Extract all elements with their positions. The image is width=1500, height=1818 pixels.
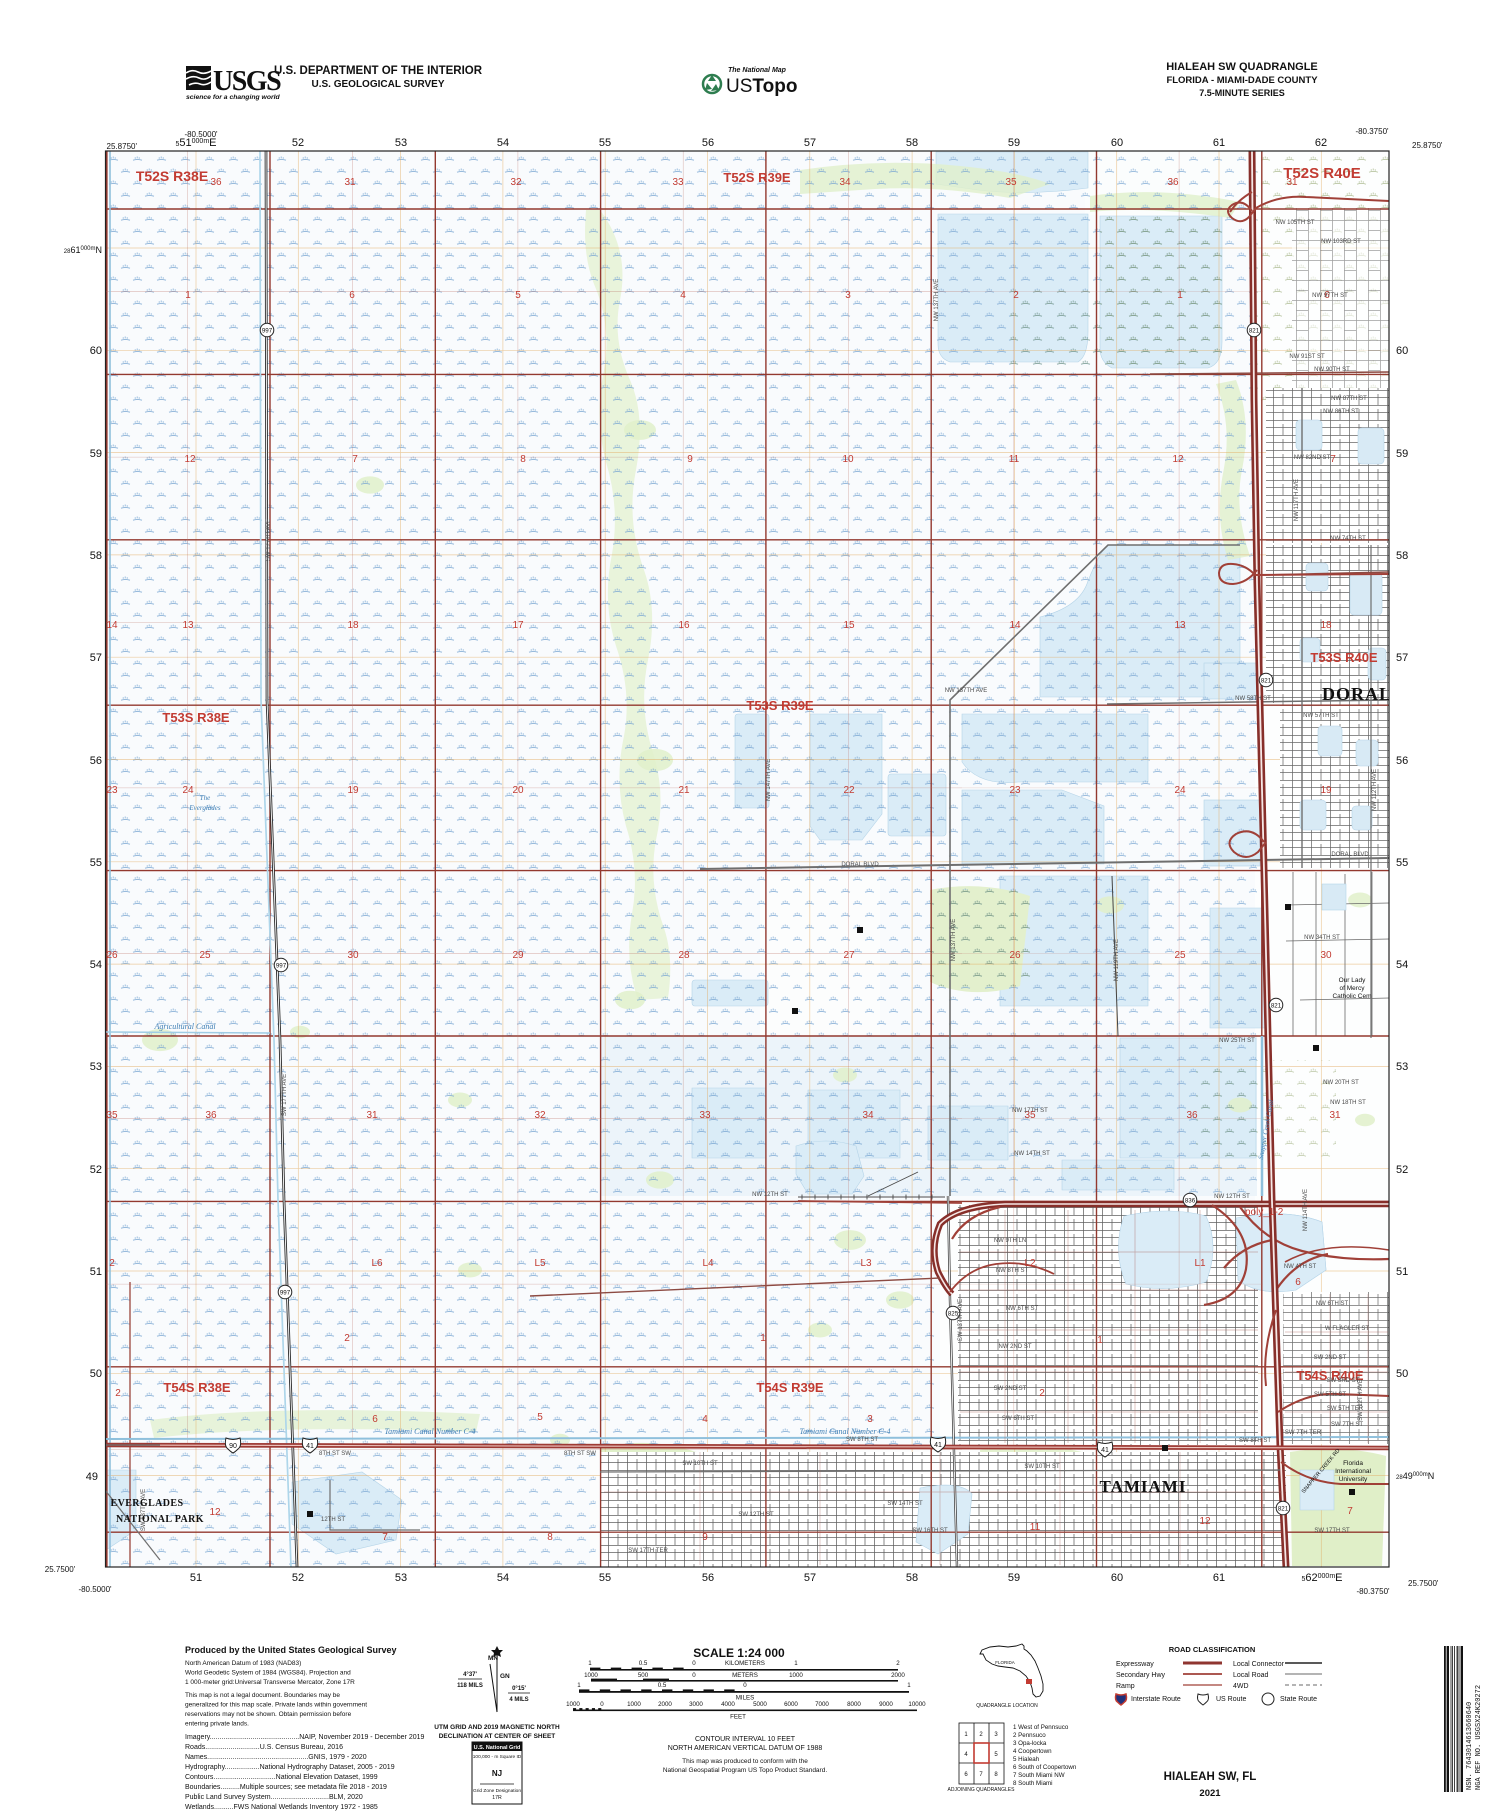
- svg-text:NW 34TH ST: NW 34TH ST: [1304, 935, 1340, 941]
- svg-text:18: 18: [1320, 620, 1332, 631]
- svg-text:NW 82ND ST: NW 82ND ST: [1294, 455, 1331, 461]
- svg-text:55: 55: [90, 857, 102, 869]
- svg-text:NW 90TH ST: NW 90TH ST: [1314, 367, 1350, 373]
- svg-text:41: 41: [1101, 1447, 1109, 1454]
- svg-text:2000: 2000: [658, 1701, 672, 1708]
- svg-text:13: 13: [1174, 620, 1186, 631]
- svg-text:NORTH AMERICAN VERTICAL DATUM: NORTH AMERICAN VERTICAL DATUM OF 1988: [668, 1745, 823, 1752]
- svg-text:53: 53: [395, 1572, 407, 1584]
- svg-text:NSN. 7643014613660640: NSN. 7643014613660640: [1466, 1702, 1474, 1790]
- svg-text:31: 31: [344, 177, 356, 188]
- svg-text:11: 11: [1009, 454, 1020, 465]
- svg-text:U.S. DEPARTMENT OF THE INTERIO: U.S. DEPARTMENT OF THE INTERIOR: [274, 65, 483, 77]
- svg-text:24: 24: [1174, 785, 1186, 796]
- svg-text:FLORIDA - MIAMI-DADE COUNTY: FLORIDA - MIAMI-DADE COUNTY: [1166, 75, 1318, 86]
- svg-text:36: 36: [205, 1110, 217, 1121]
- svg-text:30: 30: [1320, 950, 1332, 961]
- svg-text:SW 10TH ST: SW 10TH ST: [1024, 1464, 1060, 1470]
- svg-text:821: 821: [1278, 1505, 1289, 1512]
- svg-text:NW 17TH ST: NW 17TH ST: [1012, 1108, 1048, 1114]
- svg-text:T52S R39E: T52S R39E: [723, 170, 791, 185]
- svg-text:52: 52: [90, 1164, 102, 1176]
- svg-text:21: 21: [678, 785, 690, 796]
- svg-text:reservations may not be shown.: reservations may not be shown. Obtain pe…: [185, 1711, 352, 1718]
- svg-text:53: 53: [1396, 1061, 1408, 1073]
- svg-text:1 000-meter grid:Universal Tra: 1 000-meter grid:Universal Transverse Me…: [185, 1679, 355, 1686]
- svg-text:27: 27: [843, 950, 855, 961]
- svg-text:57: 57: [90, 652, 102, 664]
- svg-text:58: 58: [90, 550, 102, 562]
- svg-text:6000: 6000: [784, 1701, 798, 1708]
- svg-text:Public Land Survey Syste: Public Land Survey System...............…: [185, 1794, 363, 1801]
- svg-text:SW 7TH TER: SW 7TH TER: [1285, 1430, 1322, 1436]
- svg-text:of Mercy: of Mercy: [1340, 985, 1366, 992]
- svg-text:8TH ST SW: 8TH ST SW: [564, 1451, 596, 1457]
- svg-text:NW 6TH ST: NW 6TH ST: [1316, 1301, 1349, 1307]
- svg-text:Produced by the United States: Produced by the United States Geological…: [185, 1645, 397, 1655]
- svg-text:-80.3750': -80.3750': [1355, 127, 1389, 136]
- svg-text:SW 2ND ST: SW 2ND ST: [1314, 1355, 1347, 1361]
- svg-text:UTM GRID AND 2019 MAGNETIC NOR: UTM GRID AND 2019 MAGNETIC NORTH: [434, 1724, 560, 1731]
- svg-text:56: 56: [702, 1572, 714, 1584]
- svg-text:6 South of Coopertown: 6 South of Coopertown: [1013, 1764, 1077, 1771]
- svg-text:1: 1: [1097, 1335, 1103, 1346]
- svg-text:36: 36: [1186, 1110, 1198, 1121]
- svg-text:62: 62: [1315, 137, 1327, 149]
- svg-text:41: 41: [934, 1442, 942, 1449]
- svg-text:1: 1: [760, 1333, 766, 1344]
- svg-text:821: 821: [1261, 677, 1272, 684]
- svg-text:8 South Miami: 8 South Miami: [1013, 1780, 1053, 1787]
- svg-text:7: 7: [1347, 1506, 1353, 1517]
- svg-text:University: University: [1339, 1476, 1368, 1483]
- svg-text:53: 53: [395, 137, 407, 149]
- svg-text:METERS: METERS: [732, 1672, 758, 1679]
- svg-text:6: 6: [372, 1414, 378, 1425]
- svg-text:1000: 1000: [789, 1672, 803, 1679]
- svg-text:7: 7: [382, 1532, 388, 1543]
- svg-text:L3: L3: [860, 1258, 872, 1269]
- svg-text:821: 821: [1271, 1002, 1282, 1009]
- svg-text:NGA REF NO. USGSX24K20272: NGA REF NO. USGSX24K20272: [1475, 1685, 1483, 1790]
- svg-text:International: International: [1335, 1468, 1371, 1475]
- svg-text:4: 4: [680, 290, 686, 301]
- svg-text:55: 55: [599, 137, 611, 149]
- svg-text:ADJOINING QUADRANGLES: ADJOINING QUADRANGLES: [948, 1787, 1016, 1793]
- svg-text:9: 9: [687, 454, 693, 465]
- svg-text:25: 25: [1174, 950, 1186, 961]
- svg-text:51: 51: [90, 1266, 102, 1278]
- svg-text:7 South Miami NW: 7 South Miami NW: [1013, 1772, 1065, 1779]
- svg-text:SW 112TH AVE: SW 112TH AVE: [1358, 1379, 1364, 1421]
- svg-text:KILOMETERS: KILOMETERS: [725, 1660, 765, 1667]
- svg-text:Grid Zone Designation: Grid Zone Designation: [473, 1788, 521, 1794]
- svg-text:SW 6TH ST: SW 6TH ST: [1002, 1416, 1034, 1422]
- svg-text:NW 87TH ST: NW 87TH ST: [1331, 396, 1367, 402]
- svg-text:58: 58: [906, 1572, 918, 1584]
- svg-text:58: 58: [1396, 550, 1408, 562]
- svg-text:2: 2: [1039, 1388, 1045, 1399]
- svg-text:10000: 10000: [908, 1701, 926, 1708]
- svg-text:Names.........................: Names...................................…: [185, 1754, 367, 1761]
- svg-text:NW 97TH ST: NW 97TH ST: [1312, 293, 1348, 299]
- svg-text:3 Opa-locka: 3 Opa-locka: [1013, 1740, 1047, 1747]
- svg-text:2021: 2021: [1199, 1788, 1221, 1799]
- svg-text:NW 137TH AVE: NW 137TH AVE: [934, 279, 940, 322]
- svg-text:49: 49: [86, 1471, 98, 1483]
- svg-text:NW 6TH ST: NW 6TH ST: [1006, 1306, 1039, 1312]
- svg-text:NW 25TH ST: NW 25TH ST: [1219, 1038, 1255, 1044]
- svg-text:500: 500: [638, 1672, 649, 1679]
- svg-text:52: 52: [292, 1572, 304, 1584]
- svg-text:50: 50: [1396, 1368, 1408, 1380]
- svg-text:T54S R38E: T54S R38E: [163, 1380, 231, 1395]
- svg-text:25.7500': 25.7500': [1408, 1579, 1439, 1588]
- svg-text:2: 2: [1013, 290, 1019, 301]
- svg-text:This map is not a legal docume: This map is not a legal document. Bounda…: [185, 1692, 340, 1699]
- svg-text:2: 2: [115, 1388, 121, 1399]
- svg-text:3: 3: [867, 1414, 873, 1425]
- svg-text:0: 0: [743, 1682, 747, 1689]
- svg-text:23: 23: [1009, 785, 1021, 796]
- svg-text:SW 2ND ST: SW 2ND ST: [994, 1386, 1027, 1392]
- svg-text:54: 54: [1396, 959, 1408, 971]
- svg-text:NW 18TH ST: NW 18TH ST: [1330, 1100, 1366, 1106]
- svg-text:52: 52: [1396, 1164, 1408, 1176]
- svg-text:T54S R39E: T54S R39E: [756, 1380, 824, 1395]
- svg-text:41: 41: [306, 1443, 314, 1450]
- svg-text:34: 34: [839, 177, 851, 188]
- svg-text:24: 24: [182, 785, 194, 796]
- svg-text:L5: L5: [534, 1258, 546, 1269]
- svg-text:poly_1-2: poly_1-2: [1245, 1207, 1284, 1218]
- svg-text:NW 103RD ST: NW 103RD ST: [1321, 239, 1361, 245]
- svg-text:2: 2: [109, 1258, 115, 1269]
- svg-text:10: 10: [842, 454, 854, 465]
- svg-text:9: 9: [702, 1532, 708, 1543]
- svg-text:Boundaries..........Multiple: Boundaries..........Multiple sources; se…: [185, 1784, 387, 1791]
- svg-text:0°15': 0°15': [512, 1686, 526, 1692]
- svg-text:34: 34: [862, 1110, 874, 1121]
- svg-text:Agricultural Canal: Agricultural Canal: [153, 1022, 216, 1031]
- svg-text:7.5-MINUTE SERIES: 7.5-MINUTE SERIES: [1199, 88, 1285, 98]
- svg-text:1: 1: [577, 1682, 581, 1689]
- svg-text:8: 8: [547, 1532, 553, 1543]
- svg-text:NW 147TH AVE: NW 147TH AVE: [766, 759, 772, 802]
- svg-text:National Geospatial Program US: National Geospatial Program US Topo Prod…: [663, 1767, 827, 1774]
- svg-text:NW 114TH AVE: NW 114TH AVE: [1303, 1189, 1309, 1231]
- svg-text:51: 51: [190, 1572, 202, 1584]
- svg-text:1: 1: [794, 1660, 798, 1667]
- svg-text:54: 54: [90, 959, 102, 971]
- svg-text:997: 997: [262, 327, 273, 334]
- svg-text:54: 54: [497, 1572, 509, 1584]
- svg-text:118 MILS: 118 MILS: [457, 1683, 483, 1689]
- svg-text:SCALE 1:24 000: SCALE 1:24 000: [693, 1646, 785, 1660]
- svg-text:Interstate Route: Interstate Route: [1131, 1696, 1181, 1703]
- svg-text:5 Hialeah: 5 Hialeah: [1013, 1756, 1040, 1763]
- svg-text:30: 30: [347, 950, 359, 961]
- svg-text:Local Connector: Local Connector: [1233, 1661, 1285, 1668]
- svg-text:60: 60: [1111, 137, 1123, 149]
- svg-text:NATIONAL PARK: NATIONAL PARK: [116, 1514, 204, 1525]
- svg-text:4: 4: [702, 1414, 708, 1425]
- svg-text:32: 32: [510, 177, 522, 188]
- svg-text:NW 9TH LN: NW 9TH LN: [994, 1238, 1026, 1244]
- svg-text:Hydrography..................N: Hydrography..................National Hy…: [185, 1764, 395, 1771]
- svg-text:NW 137TH AVE: NW 137TH AVE: [951, 919, 957, 962]
- svg-text:0: 0: [692, 1672, 696, 1679]
- svg-text:SW 12TH ST: SW 12TH ST: [738, 1512, 774, 1518]
- svg-text:Contours......................: Contours................................…: [185, 1774, 378, 1781]
- svg-text:35: 35: [106, 1110, 118, 1121]
- svg-text:SW 3RD ST: SW 3RD ST: [1327, 1378, 1360, 1384]
- svg-text:9000: 9000: [879, 1701, 893, 1708]
- svg-text:4WD: 4WD: [1233, 1683, 1249, 1690]
- svg-text:8000: 8000: [847, 1701, 861, 1708]
- svg-text:31: 31: [1329, 1110, 1341, 1121]
- svg-text:5000: 5000: [753, 1701, 767, 1708]
- svg-text:33: 33: [672, 177, 684, 188]
- svg-text:22: 22: [843, 785, 855, 796]
- svg-text:NW 119TH AVE: NW 119TH AVE: [1114, 939, 1120, 981]
- svg-text:57: 57: [804, 137, 816, 149]
- svg-text:DECLINATION AT CENTER OF SHEET: DECLINATION AT CENTER OF SHEET: [439, 1733, 556, 1740]
- svg-text:L6: L6: [371, 1258, 383, 1269]
- svg-text:4000: 4000: [721, 1701, 735, 1708]
- svg-text:90: 90: [229, 1443, 237, 1450]
- svg-text:19: 19: [347, 785, 359, 796]
- svg-text:State Route: State Route: [1280, 1696, 1317, 1703]
- svg-text:33: 33: [699, 1110, 711, 1121]
- svg-text:51: 51: [1396, 1266, 1408, 1278]
- svg-text:World Geodetic System of 1984: World Geodetic System of 1984 (WGS84). P…: [185, 1670, 351, 1677]
- svg-text:NW 117TH AVE: NW 117TH AVE: [1294, 479, 1300, 521]
- svg-text:Expressway: Expressway: [1116, 1661, 1154, 1668]
- svg-text:61: 61: [1213, 137, 1225, 149]
- svg-text:SW 8TH ST: SW 8TH ST: [1239, 1438, 1271, 1444]
- svg-text:36: 36: [210, 177, 222, 188]
- svg-text:4 Coopertown: 4 Coopertown: [1013, 1748, 1052, 1755]
- svg-text:100,000 - m Square ID: 100,000 - m Square ID: [473, 1754, 522, 1760]
- svg-text:2000: 2000: [891, 1672, 905, 1679]
- svg-text:15: 15: [843, 620, 855, 631]
- svg-text:NJ: NJ: [492, 1769, 502, 1778]
- svg-text:6: 6: [1295, 1277, 1301, 1288]
- svg-text:U.S. National Grid: U.S. National Grid: [474, 1745, 521, 1751]
- svg-text:1: 1: [1177, 290, 1183, 301]
- svg-text:2: 2: [896, 1660, 900, 1667]
- svg-text:-80.3750': -80.3750': [1356, 1587, 1390, 1596]
- svg-text:T53S R39E: T53S R39E: [746, 698, 814, 713]
- svg-text:CONTOUR INTERVAL 10 FEET: CONTOUR INTERVAL 10 FEET: [695, 1736, 796, 1743]
- svg-text:28: 28: [678, 950, 690, 961]
- svg-text:NW 74TH ST: NW 74TH ST: [1330, 536, 1366, 542]
- svg-text:1: 1: [185, 290, 191, 301]
- svg-text:4 MILS: 4 MILS: [509, 1697, 528, 1703]
- svg-text:SW 8TH ST: SW 8TH ST: [846, 1437, 878, 1443]
- svg-text:997: 997: [280, 1289, 291, 1296]
- svg-text:25.7500': 25.7500': [45, 1565, 76, 1574]
- svg-text:NW 12TH ST: NW 12TH ST: [1214, 1194, 1250, 1200]
- svg-text:32: 32: [534, 1110, 546, 1121]
- svg-text:0.5: 0.5: [639, 1660, 648, 1667]
- svg-text:NW 58TH ST: NW 58TH ST: [1235, 696, 1271, 702]
- svg-text:6: 6: [349, 290, 355, 301]
- svg-text:SW 5TH ST: SW 5TH ST: [1314, 1392, 1346, 1398]
- svg-text:HIALEAH SW QUADRANGLE: HIALEAH SW QUADRANGLE: [1166, 61, 1318, 73]
- svg-text:836: 836: [1185, 1197, 1196, 1204]
- svg-text:Everglades: Everglades: [188, 804, 221, 812]
- svg-text:QUADRANGLE LOCATION: QUADRANGLE LOCATION: [976, 1703, 1038, 1709]
- svg-text:26: 26: [106, 950, 118, 961]
- svg-text:Florida: Florida: [1343, 1460, 1363, 1467]
- svg-text:31: 31: [366, 1110, 378, 1121]
- svg-text:MN: MN: [488, 1655, 498, 1662]
- svg-text:NW 8TH ST: NW 8TH ST: [996, 1268, 1029, 1274]
- svg-text:59: 59: [1008, 1572, 1020, 1584]
- svg-text:12: 12: [209, 1507, 221, 1518]
- svg-text:FLORIDA: FLORIDA: [995, 1660, 1015, 1665]
- svg-text:821: 821: [1249, 327, 1260, 334]
- svg-text:NW 4TH ST: NW 4TH ST: [1284, 1264, 1317, 1270]
- svg-text:Our Lady: Our Lady: [1339, 977, 1366, 984]
- svg-text:1 West of Pennsuco: 1 West of Pennsuco: [1013, 1724, 1069, 1731]
- svg-text:11: 11: [1030, 1522, 1041, 1533]
- svg-text:26: 26: [1009, 950, 1021, 961]
- svg-text:entering private lands.: entering private lands.: [185, 1721, 249, 1728]
- svg-text:W FLAGLER ST: W FLAGLER ST: [1325, 1326, 1369, 1332]
- svg-text:7000: 7000: [815, 1701, 829, 1708]
- svg-text:20: 20: [512, 785, 524, 796]
- svg-text:FEET: FEET: [730, 1714, 746, 1721]
- svg-text:NW 12TH ST: NW 12TH ST: [752, 1192, 788, 1198]
- svg-text:17R: 17R: [492, 1795, 502, 1801]
- svg-text:7: 7: [352, 454, 358, 465]
- svg-text:generalized for this map scale: generalized for this map scale. Private …: [185, 1701, 367, 1708]
- svg-text:25.8750': 25.8750': [107, 142, 138, 151]
- svg-text:8TH ST SW: 8TH ST SW: [319, 1451, 351, 1457]
- svg-text:50: 50: [90, 1368, 102, 1380]
- svg-text:NW 86TH ST: NW 86TH ST: [1323, 409, 1359, 415]
- svg-text:U.S. GEOLOGICAL SURVEY: U.S. GEOLOGICAL SURVEY: [312, 79, 445, 90]
- svg-text:25.8750': 25.8750': [1412, 141, 1443, 150]
- svg-text:Roads.........................: Roads............................U.S. Ce…: [185, 1744, 343, 1751]
- svg-text:T53S R40E: T53S R40E: [1310, 650, 1378, 665]
- svg-text:59: 59: [90, 448, 102, 460]
- svg-text:55: 55: [599, 1572, 611, 1584]
- svg-text:5: 5: [537, 1412, 543, 1423]
- svg-text:18: 18: [347, 620, 359, 631]
- svg-text:54: 54: [497, 137, 509, 149]
- svg-text:The National Map: The National Map: [728, 67, 787, 74]
- svg-text:DORAL BLVD: DORAL BLVD: [841, 862, 879, 868]
- svg-text:13: 13: [182, 620, 194, 631]
- svg-text:58: 58: [906, 137, 918, 149]
- svg-text:5: 5: [515, 290, 521, 301]
- svg-text:Local Road: Local Road: [1233, 1672, 1269, 1679]
- svg-text:NW 91ST ST: NW 91ST ST: [1289, 354, 1325, 360]
- svg-text:57: 57: [804, 1572, 816, 1584]
- svg-text:SW 17TH ST: SW 17TH ST: [1314, 1528, 1350, 1534]
- svg-text:16: 16: [678, 620, 690, 631]
- svg-text:USTopo: USTopo: [726, 76, 797, 97]
- svg-text:EVERGLADES: EVERGLADES: [111, 1498, 184, 1509]
- svg-text:56: 56: [1396, 755, 1408, 767]
- svg-text:59: 59: [1008, 137, 1020, 149]
- svg-text:35: 35: [1005, 177, 1017, 188]
- svg-text:L1: L1: [1194, 1258, 1206, 1269]
- svg-text:12: 12: [1199, 1516, 1211, 1527]
- svg-text:SW 177TH AVE: SW 177TH AVE: [282, 1074, 288, 1116]
- svg-text:DORAL BLVD: DORAL BLVD: [1331, 852, 1369, 858]
- svg-text:0: 0: [600, 1701, 604, 1708]
- svg-text:29: 29: [512, 950, 524, 961]
- svg-text:52: 52: [292, 137, 304, 149]
- svg-text:Secondary Hwy: Secondary Hwy: [1116, 1672, 1166, 1679]
- svg-text:MILES: MILES: [736, 1695, 755, 1702]
- svg-text:Tamiami Canal Number C-4: Tamiami Canal Number C-4: [799, 1427, 890, 1436]
- svg-text:HIALEAH SW, FL: HIALEAH SW, FL: [1164, 1771, 1257, 1783]
- svg-text:SW 7TH ST: SW 7TH ST: [1331, 1422, 1363, 1428]
- svg-text:NW 20TH ST: NW 20TH ST: [1323, 1080, 1359, 1086]
- svg-text:3: 3: [845, 290, 851, 301]
- svg-text:US Route: US Route: [1216, 1696, 1246, 1703]
- svg-text:T53S R38E: T53S R38E: [162, 710, 230, 725]
- svg-text:SW 14TH ST: SW 14TH ST: [887, 1501, 923, 1507]
- svg-text:NW 105TH ST: NW 105TH ST: [1275, 220, 1314, 226]
- svg-text:12: 12: [184, 454, 196, 465]
- svg-text:2 Pennsuco: 2 Pennsuco: [1013, 1732, 1046, 1739]
- svg-text:1000: 1000: [627, 1701, 641, 1708]
- svg-text:12: 12: [1172, 454, 1184, 465]
- svg-text:L4: L4: [702, 1258, 714, 1269]
- svg-text:NW 57TH ST: NW 57TH ST: [1303, 713, 1339, 719]
- svg-text:12TH ST: 12TH ST: [321, 1517, 345, 1523]
- svg-text:Ramp: Ramp: [1116, 1683, 1135, 1690]
- svg-text:55: 55: [1396, 857, 1408, 869]
- svg-text:31: 31: [1286, 177, 1298, 188]
- svg-text:DORAL: DORAL: [1322, 684, 1392, 704]
- svg-text:0.5: 0.5: [658, 1682, 667, 1689]
- svg-text:SW 177TH AVE: SW 177TH AVE: [266, 519, 272, 561]
- svg-text:Imagery.......................: Imagery.................................…: [185, 1734, 424, 1741]
- svg-text:3000: 3000: [689, 1701, 703, 1708]
- svg-text:0: 0: [692, 1660, 696, 1667]
- svg-text:23: 23: [106, 785, 118, 796]
- svg-text:1: 1: [907, 1682, 911, 1689]
- svg-text:14: 14: [106, 620, 118, 631]
- svg-text:59: 59: [1396, 448, 1408, 460]
- svg-text:Wetlands..........FWS Natio: Wetlands..........FWS National Wetlands …: [185, 1804, 378, 1811]
- svg-text:Catholic Cem: Catholic Cem: [1332, 993, 1371, 1000]
- svg-text:56: 56: [90, 755, 102, 767]
- svg-text:North American Datum of 1983 (: North American Datum of 1983 (NAD83): [185, 1660, 301, 1667]
- svg-text:NW 137TH AVE: NW 137TH AVE: [945, 688, 988, 694]
- svg-text:SW 10TH ST: SW 10TH ST: [682, 1461, 718, 1467]
- svg-text:997: 997: [276, 962, 287, 969]
- svg-text:USGS: USGS: [213, 66, 281, 97]
- svg-text:7: 7: [1330, 454, 1336, 465]
- svg-text:17: 17: [512, 620, 524, 631]
- svg-text:53: 53: [90, 1061, 102, 1073]
- svg-text:1000: 1000: [584, 1672, 598, 1679]
- svg-text:Tamiami Canal Number C-4: Tamiami Canal Number C-4: [384, 1427, 475, 1436]
- svg-text:61: 61: [1213, 1572, 1225, 1584]
- svg-text:2: 2: [344, 1333, 350, 1344]
- svg-text:56: 56: [702, 137, 714, 149]
- svg-text:57: 57: [1396, 652, 1408, 664]
